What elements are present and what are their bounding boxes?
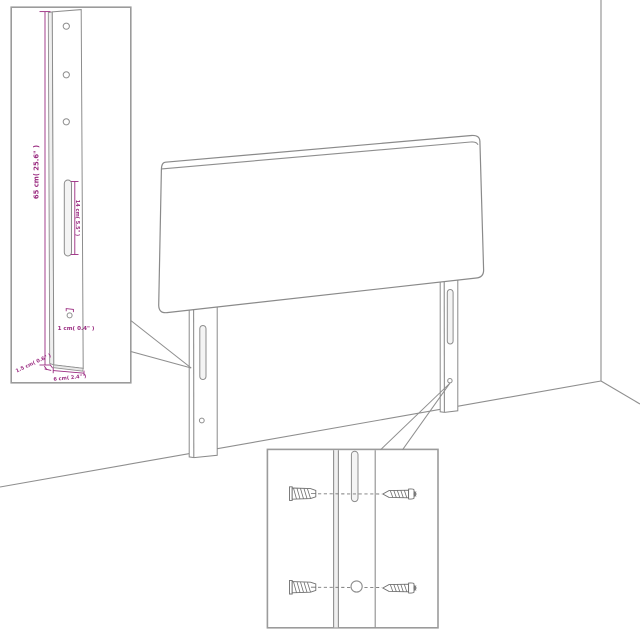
wall-plug-icon [290, 580, 316, 594]
leg-left-slot [200, 326, 206, 380]
headboard-leg-right [440, 271, 458, 413]
post-small-hole [67, 313, 72, 318]
post-hole-top [63, 23, 69, 29]
wall-plug-icon [290, 487, 316, 501]
callout-wedge-left [131, 321, 191, 369]
post-hole-middle [63, 72, 69, 78]
callout-line [381, 383, 450, 450]
callout-line [131, 321, 191, 369]
post-hole-bottom [63, 119, 69, 125]
leg-left-screw-hole [199, 418, 204, 423]
callout-line [403, 383, 450, 450]
mounting-hole [351, 581, 362, 592]
post-slot [64, 180, 71, 256]
headboard-leg-left [189, 296, 217, 458]
leg-right-slot [447, 290, 453, 345]
mounting-detail-inset [267, 449, 438, 627]
headboard-panel [159, 135, 484, 312]
callout-line [131, 352, 191, 369]
floor-edge-right [601, 381, 640, 404]
dim-label-hole-diameter: 1 cm( 0.4" ) [58, 326, 95, 332]
assembly-diagram: 65 cm( 25.6" ) 14 cm( 5.5" ) 1 cm( 0.4" … [0, 0, 640, 640]
callout-wedge-right [381, 383, 450, 450]
post-detail-inset: 65 cm( 25.6" ) 14 cm( 5.5" ) 1 cm( 0.4" … [11, 7, 131, 383]
product-diagram-page: 65 cm( 25.6" ) 14 cm( 5.5" ) 1 cm( 0.4" … [0, 0, 640, 640]
dim-label-post-height: 65 cm( 25.6" ) [33, 145, 41, 199]
dim-label-slot-length: 14 cm( 5.5" ) [74, 200, 80, 236]
headboard [159, 135, 484, 312]
leg-right-screw-hole [448, 379, 452, 383]
leg-strip-side [334, 450, 339, 627]
